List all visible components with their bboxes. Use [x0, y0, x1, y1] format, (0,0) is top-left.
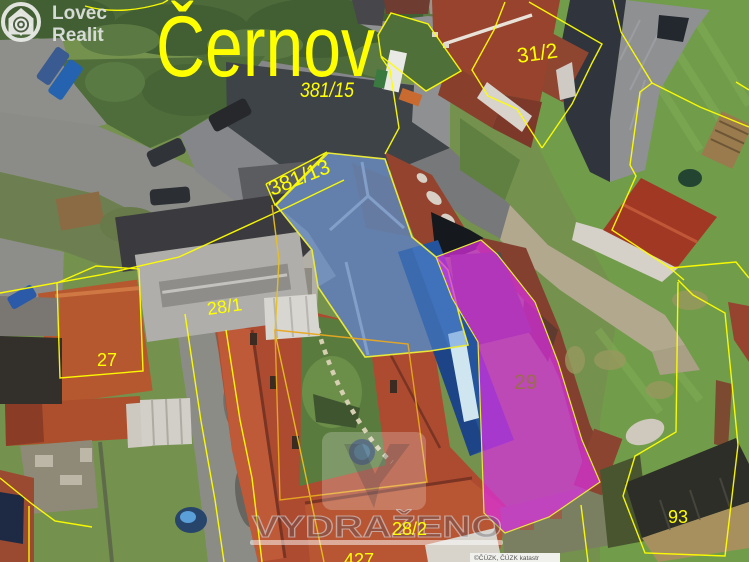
svg-text:VYDRAŽENO: VYDRAŽENO: [252, 508, 502, 544]
svg-text:427: 427: [344, 550, 374, 562]
svg-text:Lovec: Lovec: [52, 3, 107, 24]
svg-text:27: 27: [97, 350, 117, 370]
svg-text:29: 29: [514, 371, 537, 394]
svg-text:93: 93: [668, 507, 688, 527]
svg-text:381/15: 381/15: [300, 79, 354, 102]
svg-text:Realit: Realit: [52, 25, 104, 46]
svg-text:28/2: 28/2: [392, 519, 427, 539]
svg-text:©ČÚZK, ČÚZK katastr: ©ČÚZK, ČÚZK katastr: [474, 553, 540, 562]
